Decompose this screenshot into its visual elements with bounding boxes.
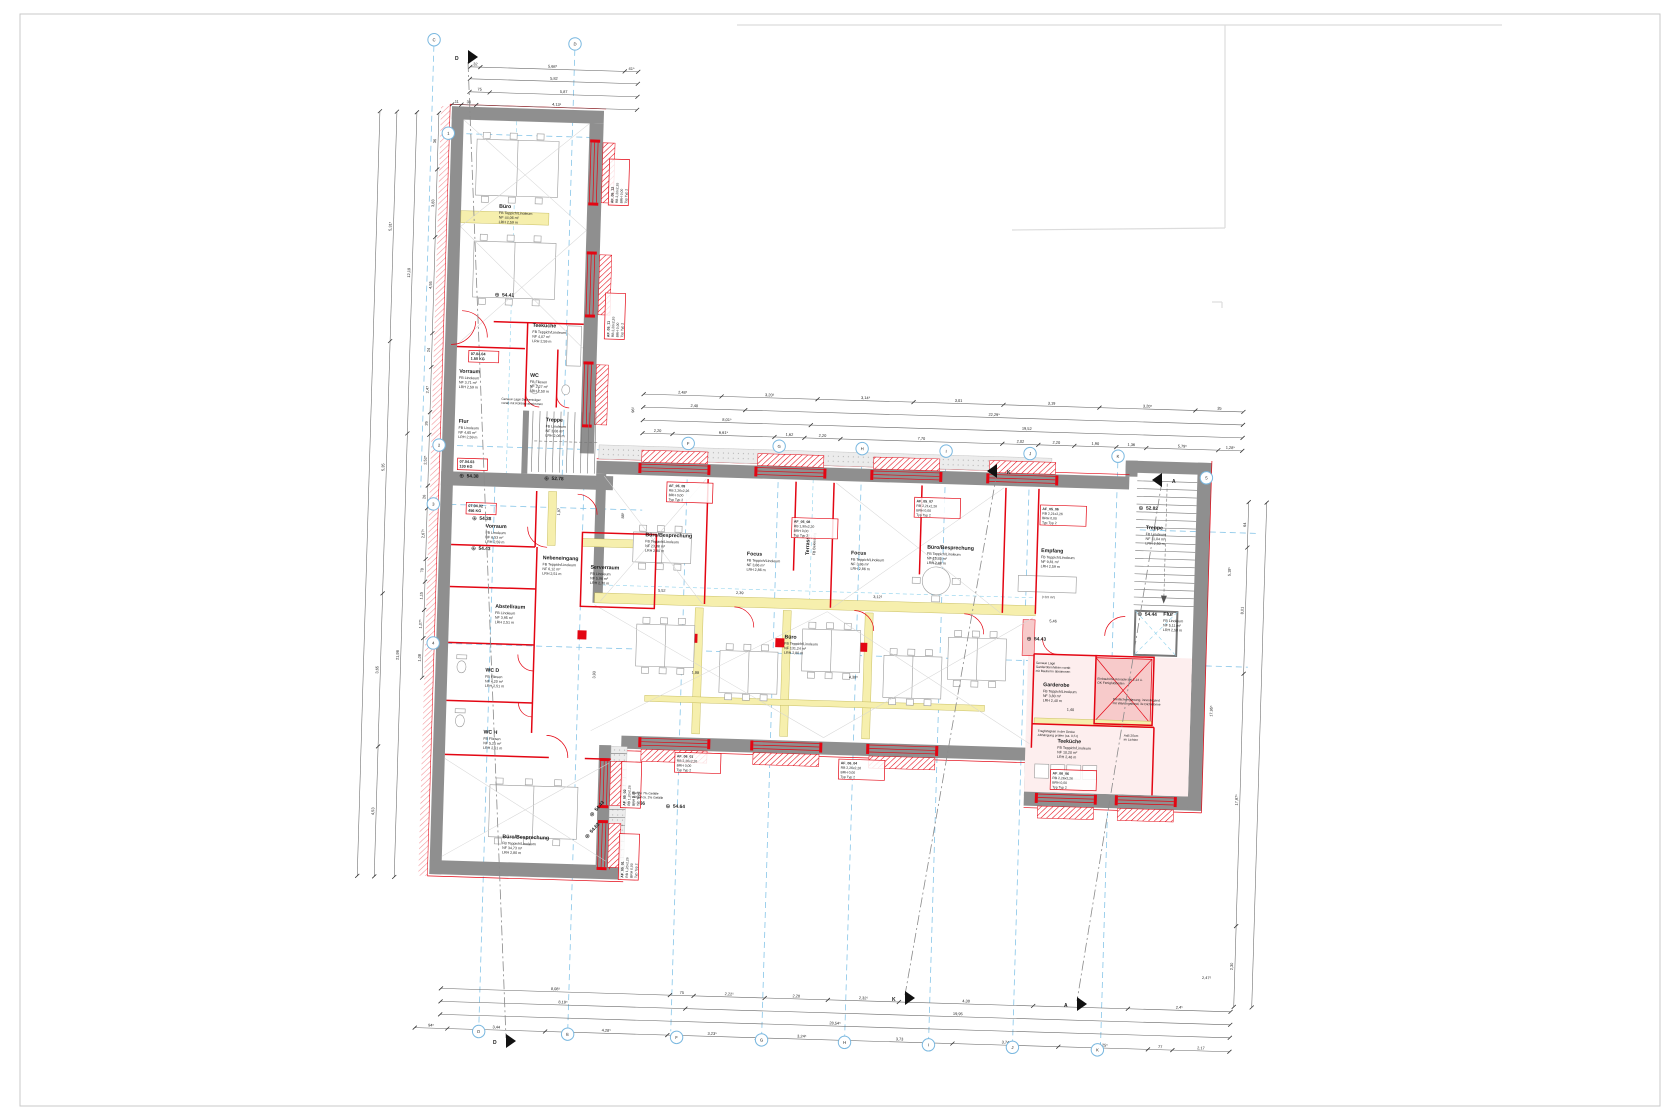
note-line: (+0,5 m²) xyxy=(1042,595,1055,599)
axis-bubble-label: H xyxy=(843,1040,846,1045)
window-jamb xyxy=(638,463,641,473)
window-jamb xyxy=(590,139,600,142)
red-wall xyxy=(585,759,611,760)
dimension-text: 26 xyxy=(421,495,426,499)
dimension-text: 5,18⁵ xyxy=(1228,567,1232,577)
dimension-text: 3,83 xyxy=(430,199,435,207)
dimension-text: 4,55 xyxy=(428,281,433,289)
level-symbol: ⊕ xyxy=(459,474,464,480)
window-tag-typ: Typ Typ 2 xyxy=(668,498,683,502)
page-background xyxy=(0,0,1680,1120)
dimension-text: 6,61⁵ xyxy=(719,430,729,435)
room-name: Empfang xyxy=(1041,548,1063,555)
dimension-text: 3,73 xyxy=(896,1036,904,1041)
chair xyxy=(912,577,920,583)
chair xyxy=(971,681,978,687)
dimension-text: 75 xyxy=(680,990,684,995)
window-jamb xyxy=(866,744,869,754)
room-info-line: LRH 2,70 m xyxy=(590,581,609,586)
dimension-text: 1,62 xyxy=(786,432,794,437)
dimension-text: 5,31⁵ xyxy=(387,221,392,231)
chair xyxy=(525,779,532,785)
level-marker: ⊕54.64 xyxy=(665,803,685,810)
dimension-text: 5,35 xyxy=(380,463,385,471)
chair xyxy=(674,564,681,570)
chair xyxy=(494,838,501,844)
chair xyxy=(744,644,751,650)
room-info-line: LRH 2,50 m xyxy=(1145,541,1164,546)
dimension-text: 1,40 xyxy=(1067,708,1075,712)
dimension-text: 1,97 xyxy=(557,508,561,516)
dimension-text: 5,68⁵ xyxy=(548,64,558,69)
window-tag-typ: Typ Typ 2 xyxy=(620,323,624,338)
room-name: WC xyxy=(530,373,539,379)
window-hatch xyxy=(989,460,1055,474)
window-jamb xyxy=(939,472,942,482)
dimension-text: 4,38⁵ xyxy=(849,675,859,679)
dimension-text: 1,90 xyxy=(1092,441,1101,446)
dimension-text: 12,19 xyxy=(406,268,411,278)
window-jamb xyxy=(707,465,710,475)
dimension-text: 8,01 xyxy=(1239,607,1244,615)
chair xyxy=(553,840,560,846)
chair xyxy=(483,132,490,138)
kitchen-unit xyxy=(1034,764,1048,778)
window-tag-typ: Typ Typ 2 xyxy=(634,863,638,878)
room-name: WC H xyxy=(483,730,497,736)
chair xyxy=(554,780,561,786)
dimension-text: 2,47⁵ xyxy=(1202,976,1212,980)
chair xyxy=(481,196,488,202)
room-info-line: LRH 2,59 m xyxy=(459,385,478,390)
cistern xyxy=(455,709,465,713)
room-info-line: LRH 2,59 m xyxy=(499,220,518,225)
dimension-text: 5,82 xyxy=(550,76,558,81)
level-marker: ⊕54.41 xyxy=(494,292,514,299)
window-jamb xyxy=(819,742,822,752)
room-label-group: VorraumFB LinoleumNF 6,53 m²LRH 2,59 m xyxy=(485,523,507,544)
kitchen-counter xyxy=(566,326,581,366)
chair xyxy=(925,650,932,656)
dimension-text: 22,29⁵ xyxy=(988,412,1000,417)
window-tag: AF_05_07RB 2,21x2,26BRH 0,00Typ Typ 2 xyxy=(914,497,961,518)
room-info-line: LRH 2,59 m xyxy=(1041,564,1060,569)
dimension-text: 36 xyxy=(432,139,437,143)
room-info-line: LRH 2,59 m xyxy=(485,540,504,545)
window-tag: AF_06_01RB 2,26x2,26BRH 0,00Typ Typ 2 xyxy=(674,752,721,773)
chair xyxy=(760,695,767,701)
dimension-text: 19,52 xyxy=(1022,426,1032,431)
room-info-line: LRH 2,59 m xyxy=(532,339,551,344)
dimension-text: 21,98 xyxy=(395,650,400,660)
window-tag: AF_05_08RB 1,90x2,20BRH 0,00Typ Typ 2 xyxy=(791,518,838,539)
window-tag: AF_05_12RB 2,26x2,26BRH 0,00Typ Typ 2 xyxy=(608,159,629,206)
dimension-text: 4,30 xyxy=(962,998,971,1003)
note-line: im Lichten xyxy=(1124,738,1139,742)
chair xyxy=(507,235,514,241)
load-tag-line: 1.50 KG xyxy=(471,357,485,361)
load-tag-line: 07.04.03 xyxy=(460,460,475,464)
dimension-text: 2,20 xyxy=(1053,440,1062,445)
room-name: Treppe xyxy=(546,417,563,424)
dimension-text: 1,28⁵ xyxy=(1226,445,1236,450)
dimension-text: 5,52 xyxy=(658,589,666,593)
level-symbol: ⊕ xyxy=(494,293,499,299)
dimension-text: 2,48⁵ xyxy=(678,390,688,395)
window-hatch xyxy=(642,450,708,464)
level-symbol: ⊕ xyxy=(472,516,477,522)
window-tag-typ: Typ Typ 2 xyxy=(793,533,808,537)
window-hatch xyxy=(874,457,940,471)
room-info-line: LRH 2,59 m xyxy=(458,435,477,440)
window-jamb xyxy=(707,739,710,749)
floor-plan-drawing: 325,68⁵41⁵5,82755,8711364,13⁵2,48⁵3,20⁵3… xyxy=(0,0,1680,1120)
chair xyxy=(890,649,897,655)
window-jamb xyxy=(585,314,595,317)
dimension-text: 2,20 xyxy=(654,428,663,433)
chair xyxy=(496,778,503,784)
window-jamb xyxy=(986,473,989,483)
chair xyxy=(742,694,749,700)
window-tag-typ: Typ Typ 2 xyxy=(840,775,855,779)
room-info-line: LRH 2,46 m xyxy=(1057,755,1076,760)
window-jamb xyxy=(588,202,598,205)
dimension-text: 4,13⁵ xyxy=(552,102,562,107)
dimension-text: 4,28⁵ xyxy=(602,1028,612,1033)
axis-bubble-label: K xyxy=(1117,454,1120,459)
window-jamb xyxy=(1055,475,1058,485)
window-hatch xyxy=(1117,808,1173,822)
level-marker: ⊕54.43 xyxy=(471,546,491,553)
chair xyxy=(656,564,663,570)
window-jamb xyxy=(1115,795,1118,805)
dimension-text: 28,54⁵ xyxy=(829,1020,841,1025)
chair xyxy=(725,694,732,700)
room-name: Teeküche xyxy=(533,323,557,330)
room-name: Focus xyxy=(851,550,867,556)
level-value: 54.43 xyxy=(478,546,491,552)
dimension-text: 2,32⁵ xyxy=(859,995,869,1000)
chair xyxy=(535,198,542,204)
reception-desk xyxy=(1018,575,1076,593)
room-name: Garderobe xyxy=(1043,682,1070,689)
dimension-text: 4,53 xyxy=(370,807,375,815)
axis-bubble-label: G xyxy=(760,1037,763,1042)
dimension-text: 2,52⁵ xyxy=(422,455,427,465)
dimension-text: 35 xyxy=(1217,406,1221,411)
level-marker: ⊕54.38 xyxy=(459,473,479,480)
chair xyxy=(678,618,685,624)
room-name: Serverraum xyxy=(590,565,619,572)
chair xyxy=(844,623,851,629)
room-info-line: LRH 2,86 m xyxy=(850,567,869,572)
load-tag-line: 07.04.04 xyxy=(471,352,487,356)
window-jamb xyxy=(1174,797,1177,807)
dimension-text: 2,67⁵ xyxy=(420,529,425,539)
room-name: WC D xyxy=(485,668,499,674)
room-name: Flur xyxy=(1163,612,1173,618)
dimension-text: 41⁵ xyxy=(629,66,635,71)
chair xyxy=(761,645,768,651)
dimension-text: 3,93 xyxy=(592,671,596,679)
window-jamb xyxy=(870,470,873,480)
window-hatch xyxy=(595,365,609,425)
window-jamb xyxy=(1094,795,1097,805)
level-value: 54.41 xyxy=(502,292,515,298)
chair xyxy=(906,699,913,705)
window-tag: AF_05_11RB 2,26x2,26BRH 0,00Typ Typ 2 xyxy=(604,293,625,340)
dimension-text: 2,20 xyxy=(793,993,802,998)
level-value: 54.64 xyxy=(673,804,686,810)
room-info-line: LRH 2,80 m xyxy=(784,651,803,656)
dimension-text: 3,24⁵ xyxy=(797,1033,807,1038)
chair xyxy=(809,622,816,628)
level-symbol: ⊕ xyxy=(1026,637,1031,643)
dimension-text: 3,12⁵ xyxy=(873,595,883,599)
room-name: Vorraum xyxy=(486,523,508,530)
axis-bubble-label: E xyxy=(566,1032,569,1037)
axis-bubble-label: D xyxy=(573,41,576,46)
dimension-text: 2,20 xyxy=(819,433,828,438)
dimension-text: 96⁵ xyxy=(631,406,635,412)
dimension-text: 19,95 xyxy=(953,1011,963,1016)
window-jamb xyxy=(582,424,592,427)
chair xyxy=(924,700,931,706)
dimension-text: 17,95⁵ xyxy=(1209,705,1213,717)
level-marker: ⊕52.82 xyxy=(1138,505,1158,512)
dimension-text: 2,4⁵ xyxy=(1176,1005,1184,1010)
dimension-text: 17,97⁵ xyxy=(1234,794,1239,806)
dimension-text: 3,01 xyxy=(955,398,963,403)
chair xyxy=(534,236,541,242)
window-tag-typ: Typ Typ 2 xyxy=(676,768,691,772)
level-value: 54.38 xyxy=(467,473,480,479)
axis-bubble-label: J xyxy=(1011,1045,1013,1050)
axis-bubble-label: I xyxy=(928,1042,929,1047)
window-tag-typ: Typ Typ 2 xyxy=(624,189,628,204)
window-jamb xyxy=(750,740,753,750)
chair xyxy=(726,644,733,650)
round-table xyxy=(922,566,951,595)
chair xyxy=(643,617,650,623)
section-label: K xyxy=(1007,470,1011,476)
chair xyxy=(826,623,833,629)
dimension-text: 11 xyxy=(455,99,459,104)
dimension-text: 3,44 xyxy=(492,1024,501,1029)
dimension-text: 2,40 xyxy=(690,403,699,408)
dimension-text: 26 xyxy=(424,421,429,425)
chair xyxy=(537,134,544,140)
section-label: A xyxy=(1172,479,1176,485)
dimension-text: 32 xyxy=(473,61,477,66)
chair xyxy=(972,631,979,637)
dimension-text: 1,15 xyxy=(418,592,423,600)
chair xyxy=(659,668,666,674)
room-info-line: LRH 2,51 m xyxy=(542,572,561,577)
level-symbol: ⊕ xyxy=(665,804,670,810)
room-name: Büro xyxy=(499,204,511,210)
window-jamb xyxy=(754,466,757,476)
chair xyxy=(889,699,896,705)
window-jamb xyxy=(1035,793,1038,803)
chair xyxy=(641,667,648,673)
room-name: Teeküche xyxy=(1057,739,1081,746)
chair xyxy=(480,234,487,240)
section-label: D xyxy=(455,56,459,62)
window-hatch xyxy=(758,454,824,468)
level-marker: ⊕52.78 xyxy=(544,476,564,483)
chair xyxy=(932,596,940,602)
dimension-text: 8,19⁵ xyxy=(558,999,568,1004)
room-name: Abstellraum xyxy=(495,604,526,611)
level-symbol: ⊕ xyxy=(1138,506,1143,512)
chair xyxy=(638,563,645,569)
wall-segment xyxy=(1126,460,1210,474)
chair xyxy=(988,681,995,687)
load-tag-line: 07.04.02 xyxy=(468,504,483,508)
dimension-text: 1,07⁵ xyxy=(418,619,423,629)
room-name: Nebeneingang xyxy=(543,555,579,562)
dimension-text: 7,70 xyxy=(918,436,927,441)
dimension-text: 88⁵ xyxy=(621,512,625,518)
dimension-text: 94⁵ xyxy=(428,1022,434,1027)
window-jamb xyxy=(587,251,597,254)
level-marker: ⊕54.38 xyxy=(472,516,492,523)
chair xyxy=(908,649,915,655)
dimension-text: 8,01⁵ xyxy=(722,417,732,422)
level-value: 54.43 xyxy=(1034,636,1047,642)
level-value: 54.44 xyxy=(1145,612,1158,618)
toilet xyxy=(457,661,466,673)
level-marker: ⊕54.43 xyxy=(1026,636,1046,643)
window-tag: AF_05_02RB 1,26x2,26BRH 0,00Typ Typ 2 xyxy=(620,762,641,809)
window-jamb xyxy=(598,820,608,823)
window-jamb xyxy=(597,867,607,870)
window-jamb xyxy=(638,737,641,747)
dimension-text: 1,36 xyxy=(1128,442,1136,447)
room-name: Flur xyxy=(459,419,469,425)
room-info-line: LRH 2,80 m xyxy=(502,851,521,856)
dimension-text: 2,47 xyxy=(425,386,430,394)
dimension-text: 2,30 xyxy=(1229,962,1234,971)
dimension-text: 3,20⁵ xyxy=(1143,403,1153,408)
dimension-text: 1,88 xyxy=(692,671,700,675)
section-label: K xyxy=(892,997,896,1003)
section-label: A xyxy=(1064,1003,1068,1009)
chair xyxy=(661,618,668,624)
chair xyxy=(677,668,684,674)
dimension-text: 3,19 xyxy=(1048,401,1056,406)
level-symbol: ⊕ xyxy=(544,476,549,482)
room-info-line: LRH 2,50 m xyxy=(530,389,549,394)
window-jamb xyxy=(823,468,826,478)
dimension-text: 77 xyxy=(1158,1044,1162,1049)
room-info-line: LRH 2,50 m xyxy=(1163,628,1182,633)
room-info-line: LRH 2,51 m xyxy=(483,746,502,751)
dimension-text: 75 xyxy=(477,86,481,91)
dimension-text: 3,65 xyxy=(374,666,379,674)
room-label-group: VorraumFB LinoleumNF 3,71 m²LRH 2,59 m xyxy=(459,369,481,390)
dimension-text: 3,14⁵ xyxy=(861,395,871,400)
window-hatch xyxy=(1037,806,1093,820)
level-value: 52.82 xyxy=(1146,506,1159,512)
room-name: Focus xyxy=(747,551,763,557)
yellow-zone xyxy=(547,491,557,545)
room-info-line: LRH 2,40 m xyxy=(1043,698,1062,703)
axis-bubble-label: I xyxy=(945,449,946,454)
chair xyxy=(675,526,682,532)
axis-bubble-label: D xyxy=(477,1029,480,1034)
chair xyxy=(990,632,997,638)
dimension-text: 5,46 xyxy=(1049,619,1057,623)
level-symbol: ⊕ xyxy=(471,546,476,552)
window-tag: AF_05_01RB 1,26x2,26BRH 0,00Typ Typ 2 xyxy=(618,834,639,881)
dimension-text: 78 xyxy=(419,568,424,572)
column xyxy=(775,638,784,647)
level-value: 52.78 xyxy=(552,476,565,482)
room-info-line: LRH 2,06 m xyxy=(545,434,564,439)
window-jamb xyxy=(935,746,938,756)
chair xyxy=(505,299,512,305)
window-tag: AF_05_09RB 2,26x2,26BRH 0,00Typ Typ 2 xyxy=(666,482,713,503)
room-info-line: LRH 2,51 m xyxy=(495,620,514,625)
room-info-line: LRH 2,86 m xyxy=(746,568,765,573)
window-tag-typ: Typ Typ 2 xyxy=(916,513,931,517)
dimension-text: 2,02 xyxy=(1017,439,1025,444)
dimension-text: 5,79⁵ xyxy=(1178,443,1188,448)
window-tag-typ: Typ Typ 2 xyxy=(1042,521,1057,525)
section-label: D xyxy=(493,1040,497,1046)
cistern xyxy=(457,655,467,659)
dimension-text: 36 xyxy=(467,99,471,104)
toilet xyxy=(455,715,464,727)
column xyxy=(577,630,586,639)
window-tag: AF_06_06RB 2,26x2,26BRH 0,00Typ Typ 2 xyxy=(1050,769,1097,790)
chair xyxy=(508,197,515,203)
dimension-text: 2,39 xyxy=(736,591,744,595)
room-info-line: LRH 2,51 m xyxy=(485,684,504,689)
chair xyxy=(955,630,962,636)
room-info-line: LRH 2,80 m xyxy=(645,549,664,554)
window-tag-typ: Typ Typ 2 xyxy=(1052,785,1067,789)
window-hatch xyxy=(753,753,819,767)
load-tag-line: 456 KG xyxy=(468,509,481,513)
window-tag: AF_06_04RB 2,26x2,26BRH 0,00Typ Typ 2 xyxy=(838,759,885,780)
toilet xyxy=(562,385,570,395)
dimension-text: 2,17 xyxy=(1197,1045,1205,1050)
room-info-line: LRH 2,80 m xyxy=(927,561,946,566)
chair xyxy=(478,298,485,304)
dimension-text: 3,20⁵ xyxy=(765,392,775,397)
room-name: Vorraum xyxy=(459,369,481,376)
dimension-text: 2,22⁵ xyxy=(725,991,735,996)
axis-bubble-label: H xyxy=(861,446,864,451)
window-jamb xyxy=(584,361,594,364)
window-tag: AF_05_06RB 2,21x2,26BRH 0,00Typ Typ 2 xyxy=(1040,505,1087,526)
chair xyxy=(952,578,960,584)
axis-bubble-label: G xyxy=(777,444,780,449)
dimension-text: 8,08⁵ xyxy=(551,986,561,991)
chair xyxy=(510,133,517,139)
dimension-text: 5,87 xyxy=(560,89,568,94)
note-line: OK Fertigfußboden xyxy=(1097,681,1124,686)
chair xyxy=(825,673,832,679)
axis-bubble-label: K xyxy=(1096,1047,1099,1052)
axis-bubble-label: J xyxy=(1029,451,1031,456)
chair xyxy=(532,300,539,306)
dimension-text: 1,08 xyxy=(417,654,422,662)
axis-bubble-label: C xyxy=(432,37,435,42)
